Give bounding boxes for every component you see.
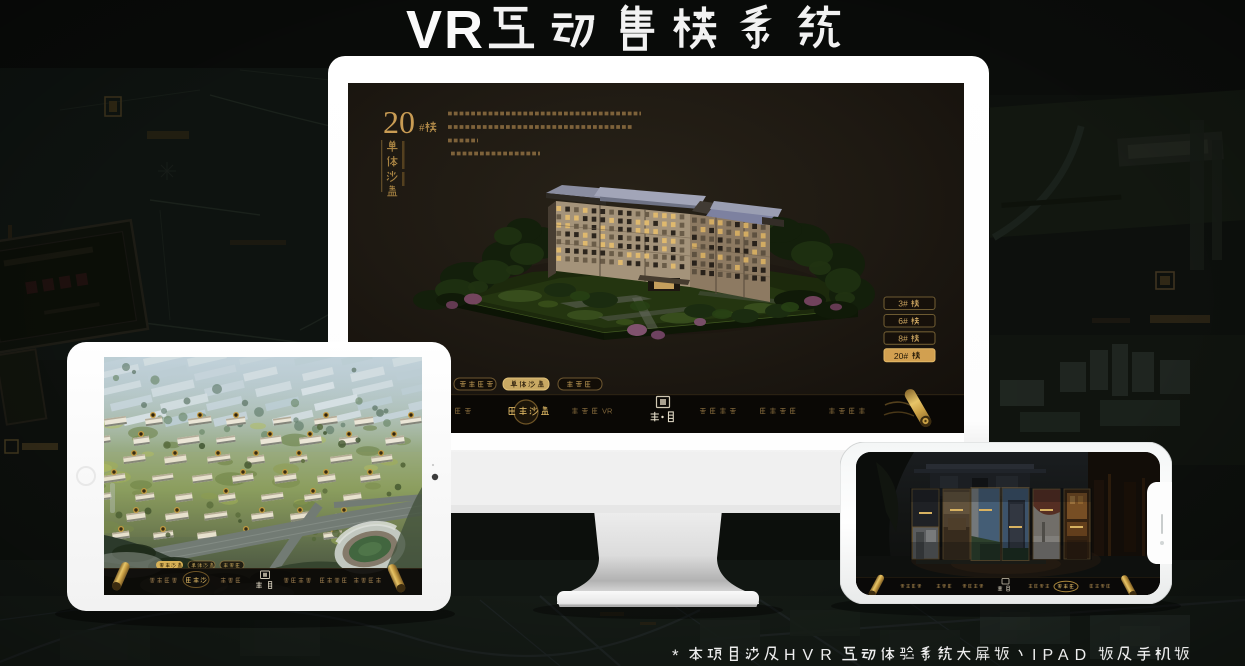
svg-text:IPAD: IPAD [1032,647,1092,664]
svg-text:VR: VR [602,407,613,416]
svg-text:20: 20 [383,104,415,140]
svg-text:3#: 3# [898,299,908,309]
svg-text:*: * [672,646,679,665]
svg-text:#: # [419,122,425,134]
svg-text:6#: 6# [898,316,908,326]
svg-text:20#: 20# [894,351,909,361]
svg-text:8#: 8# [898,333,908,343]
svg-text:HVR: HVR [784,647,839,664]
